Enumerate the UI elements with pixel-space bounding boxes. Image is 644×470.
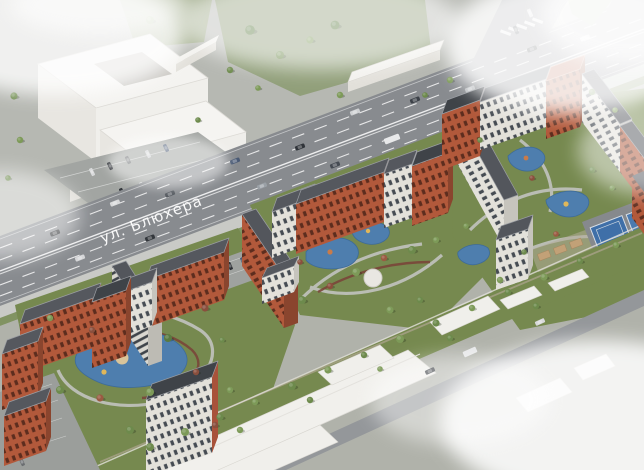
render-canvas: ул. Блюхера bbox=[0, 0, 644, 470]
building-orange-tower bbox=[92, 276, 131, 368]
round-pavilion bbox=[364, 269, 382, 287]
aerial-render-image: ул. Блюхера bbox=[0, 0, 644, 470]
